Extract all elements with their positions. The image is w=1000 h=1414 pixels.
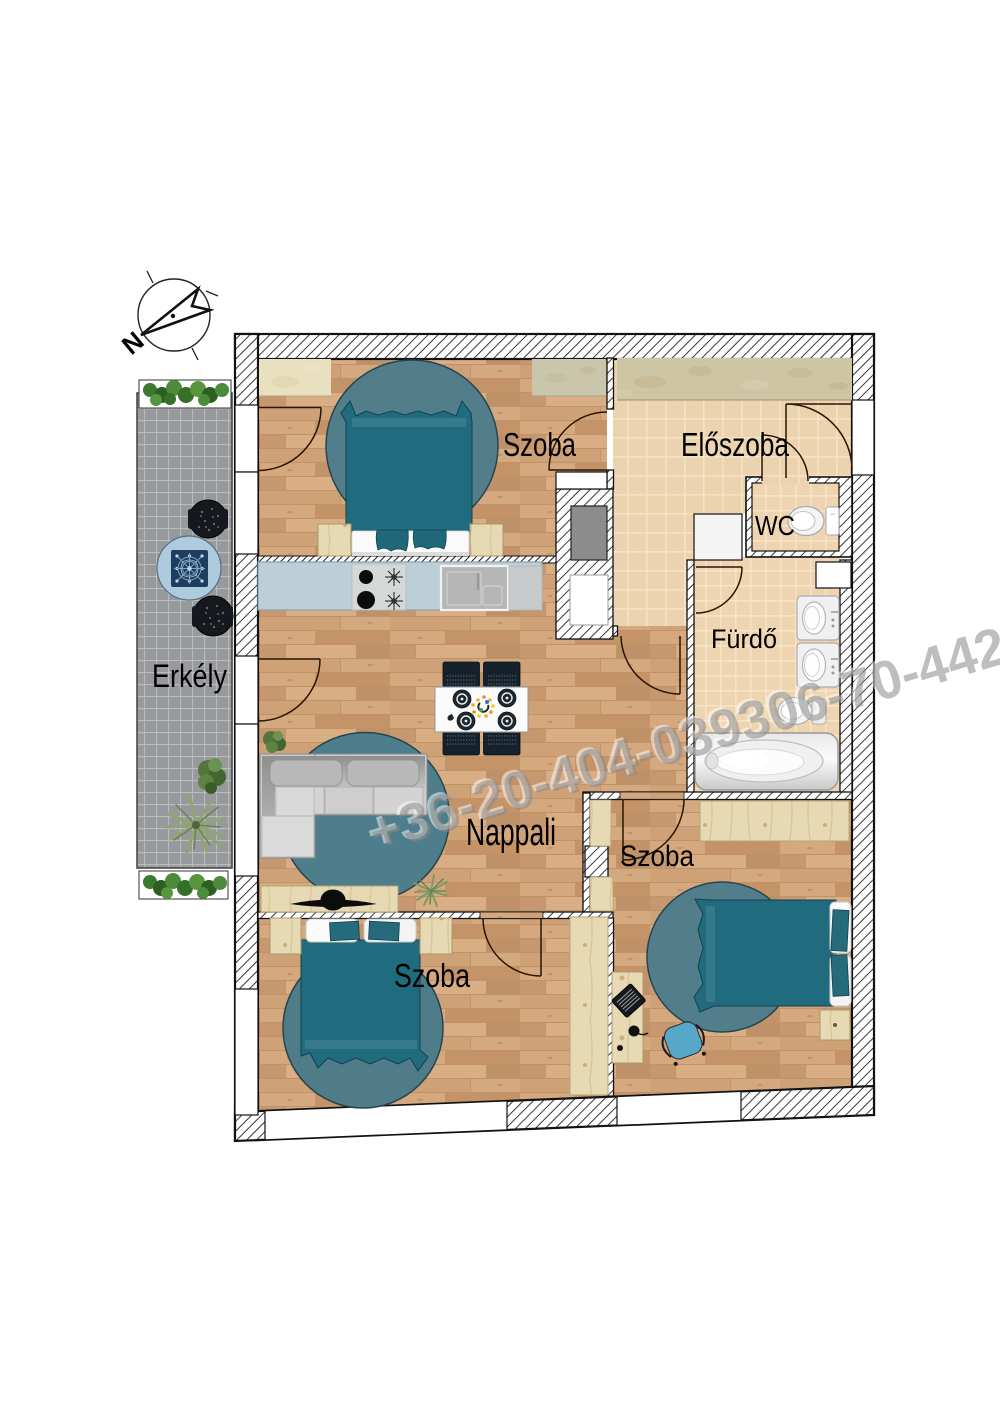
svg-text:Szoba: Szoba [394, 957, 471, 994]
svg-text:Fürdő: Fürdő [711, 624, 777, 654]
svg-text:Szoba: Szoba [620, 840, 694, 873]
svg-text:Előszoba: Előszoba [681, 426, 790, 463]
svg-text:Szoba: Szoba [503, 426, 576, 463]
svg-text:Erkély: Erkély [152, 658, 227, 694]
svg-text:WC: WC [755, 510, 795, 541]
